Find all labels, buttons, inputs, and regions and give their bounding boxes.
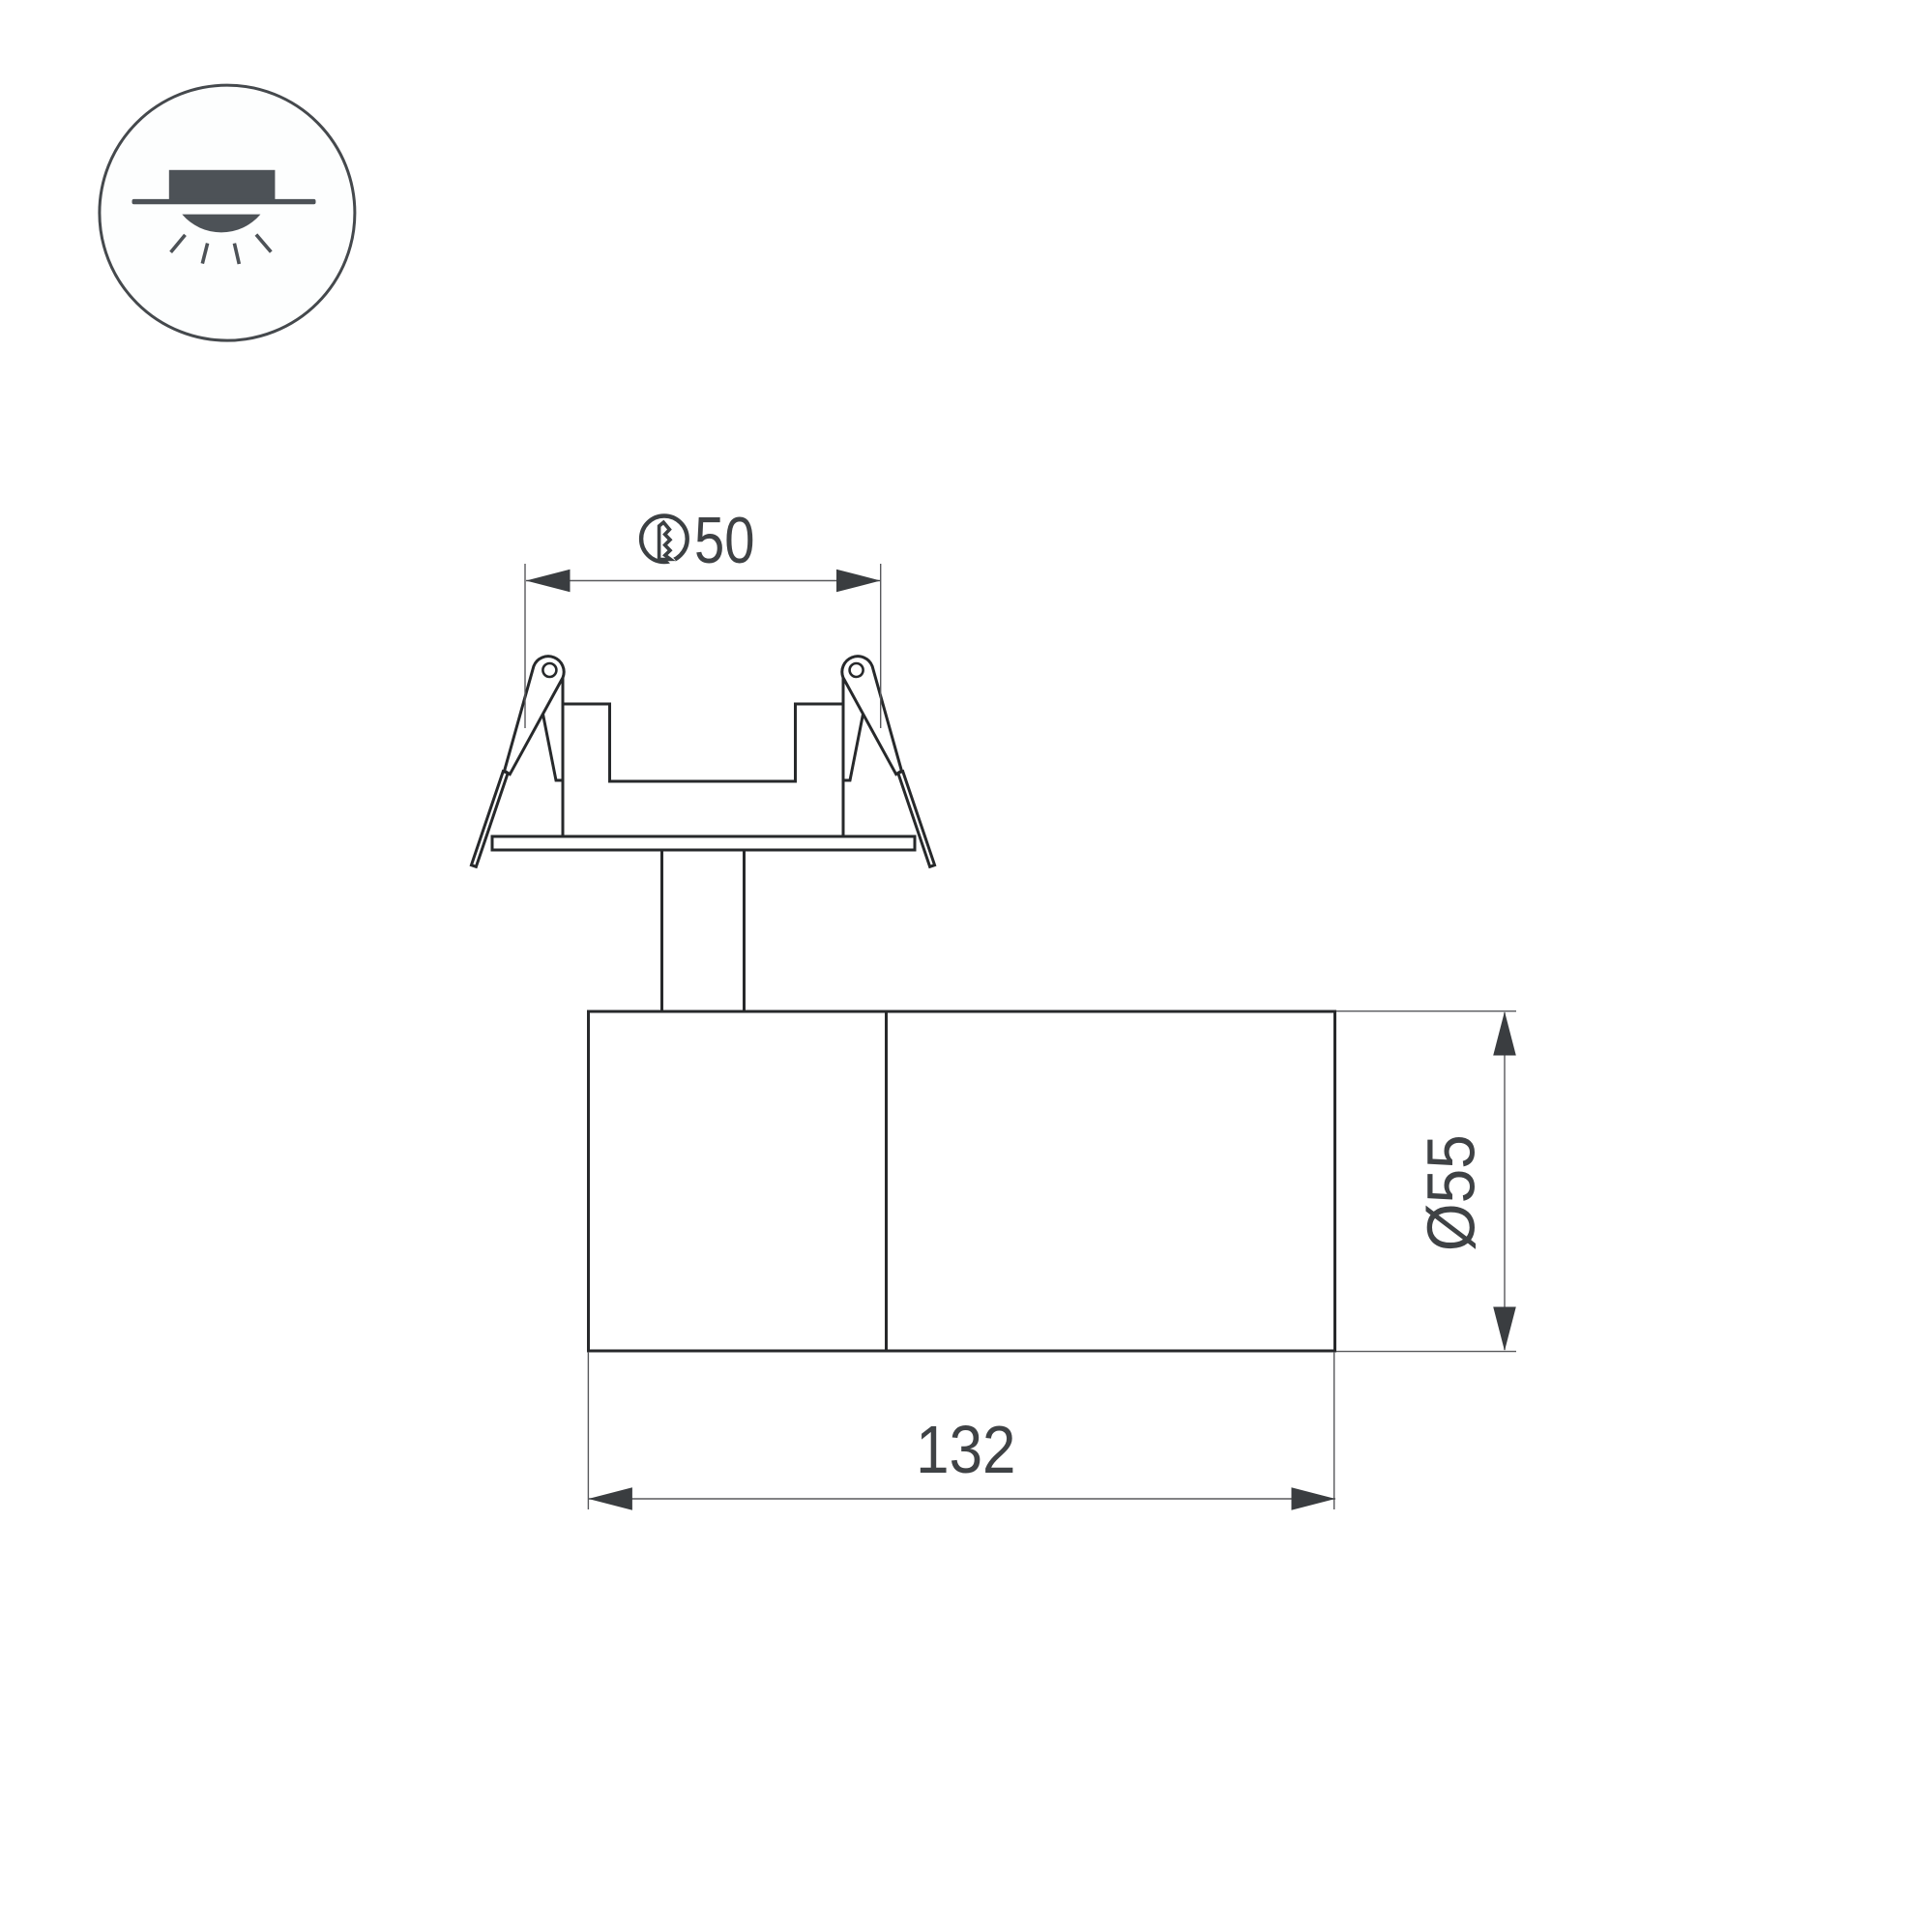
svg-text:50: 50: [694, 505, 754, 577]
svg-text:Ø55: Ø55: [1414, 1134, 1489, 1251]
svg-text:132: 132: [916, 1413, 1015, 1488]
